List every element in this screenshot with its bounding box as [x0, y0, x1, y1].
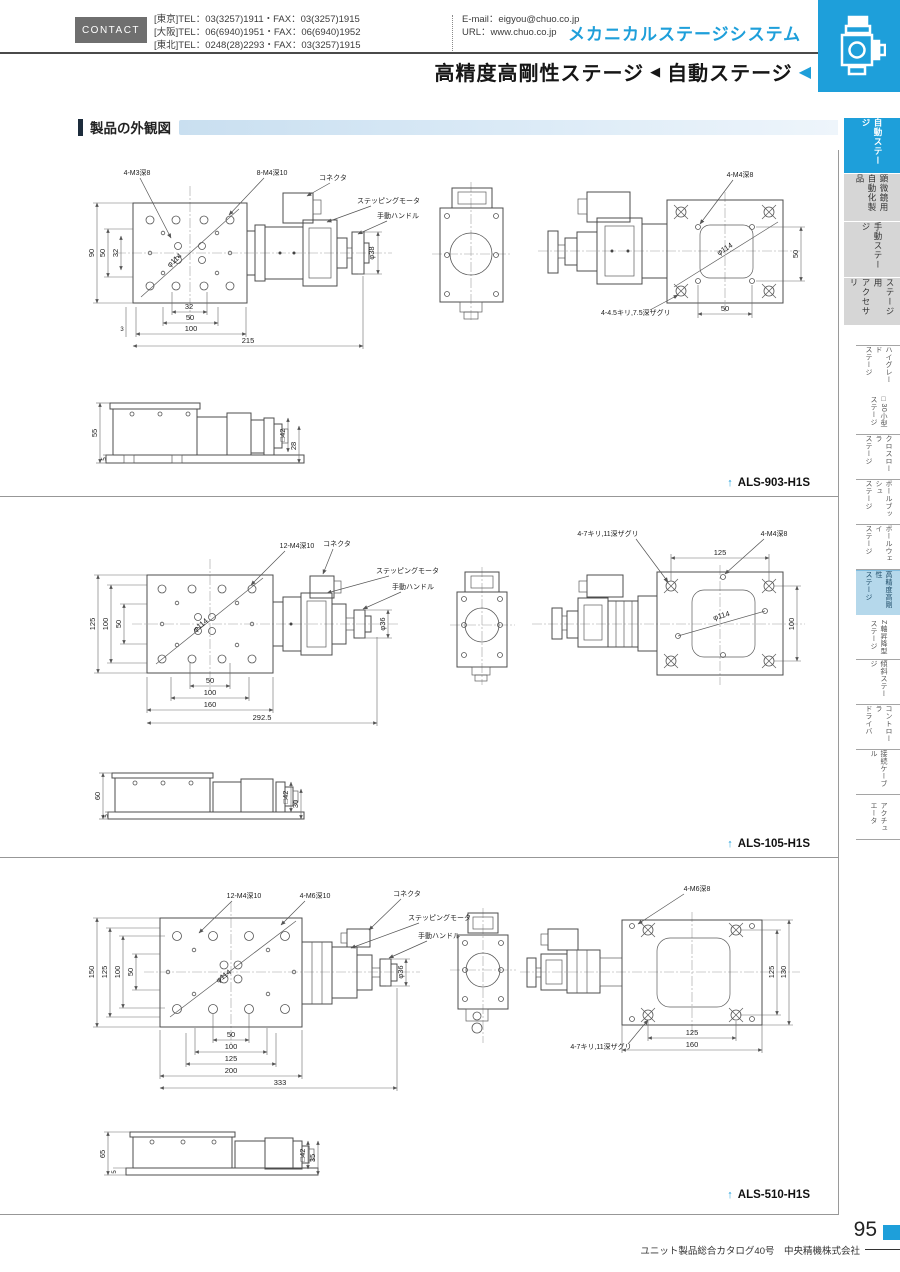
- title-arrow-blue-icon: ◀: [799, 62, 812, 82]
- drawing-section-als105: φ114 12-M4深10 コネクタ ステッピングモータ 手動ハンドル: [0, 497, 838, 858]
- front-view: [432, 182, 512, 320]
- page-number: 95: [854, 1218, 877, 1242]
- dim-left-50: 50: [114, 620, 123, 628]
- sidebar-subtab-ball-way[interactable]: ボールウェイ ステージ: [856, 525, 900, 570]
- label-handle: 手動ハンドル: [377, 211, 419, 220]
- sidebar-tab-microscope-products[interactable]: 顕微鏡用 自動化製品: [844, 174, 900, 221]
- dim-knob-dia: φ36: [396, 965, 405, 978]
- dim-side-5: 5: [112, 1170, 118, 1174]
- sidebar-tab-stage-accessory[interactable]: ステージ用 アクセサリ: [844, 278, 900, 325]
- als105-drawing: φ114 12-M4深10 コネクタ ステッピングモータ 手動ハンドル: [0, 497, 838, 857]
- label-handle: 手動ハンドル: [418, 931, 460, 940]
- dim-side-65: 65: [98, 1150, 107, 1158]
- sidebar-tab-manual-stage[interactable]: 手動ステージ: [844, 222, 900, 277]
- section-accent-bar: [179, 120, 838, 135]
- section-title: 製品の外観図: [90, 117, 171, 137]
- dim-bottom-215: 215: [242, 336, 255, 345]
- dim-bv-right-130: 130: [779, 966, 788, 979]
- dim-bv-right-125: 125: [767, 966, 776, 979]
- dim-bv-right-100: 100: [787, 618, 796, 631]
- dim-left-50: 50: [126, 968, 135, 976]
- als510-drawing: φ114 12-M4深10 4-M6深10 コネクタ ステッピングモータ 手動ハ…: [0, 858, 838, 1214]
- plan-view: φ114 12-M4深10 4-M6深10 コネクタ ステッピングモータ 手動ハ…: [87, 889, 471, 1091]
- label-tap1: 4-M3深8: [124, 168, 151, 177]
- dim-bv-bottom-125: 125: [686, 1028, 699, 1037]
- bottom-view: φ114 50 50 4-M4深8 4-4.5キリ,7.5深ザグリ: [538, 170, 805, 318]
- dim-offset-3: 3: [120, 327, 124, 333]
- dim-bottom-160: 160: [204, 700, 217, 709]
- sidebar-subtab-high-precision-rigid[interactable]: 高精度高剛性 ステージ: [856, 570, 900, 616]
- model-number: ALS-510-H1S: [738, 1189, 810, 1201]
- dim-dia114-bottom: φ114: [712, 609, 731, 622]
- label-motor: ステッピングモータ: [376, 566, 439, 575]
- header-rule: [0, 52, 818, 54]
- dim-bottom-292: 292.5: [253, 713, 272, 722]
- sidebar-subtab-tilt-stage[interactable]: 傾斜ステージ: [856, 660, 900, 705]
- plan-view: φ114 12-M4深10 コネクタ ステッピングモータ 手動ハンドル: [88, 539, 439, 726]
- sidebar-subtab-z-axis[interactable]: Z軸昇降型 ステージ: [856, 615, 900, 660]
- front-view: [450, 567, 515, 685]
- label-motor: ステッピングモータ: [408, 913, 471, 922]
- side-view: 55 5 □42 28: [90, 403, 304, 463]
- model-label-als510: ↑ ALS-510-H1S: [727, 1189, 810, 1201]
- label-connector: コネクタ: [393, 889, 421, 898]
- page-title-left: 高精度高剛性ステージ: [434, 57, 644, 86]
- sidebar-subtab-30-compact[interactable]: □30小型 ステージ: [856, 390, 900, 435]
- stage-icon: [832, 15, 886, 77]
- dim-bottom-32: 32: [185, 302, 193, 311]
- label-connector: コネクタ: [323, 539, 351, 548]
- dim-bv-top-125: 125: [714, 548, 727, 557]
- dim-bottom-333: 333: [274, 1078, 287, 1087]
- drawing-section-als510: φ114 12-M4深10 4-M6深10 コネクタ ステッピングモータ 手動ハ…: [0, 858, 838, 1215]
- dim-side-55: 55: [90, 429, 99, 437]
- sidebar-subtab-controller-driver[interactable]: コントローラ ドライバ: [856, 705, 900, 750]
- bottom-view: 4-M6深8 4-7キリ,11深ザグリ 125 130 125 160: [520, 884, 800, 1053]
- dim-bottom-125: 125: [225, 1054, 238, 1063]
- sidebar-tab-auto-stage[interactable]: 自動ステージ: [844, 118, 900, 173]
- model-label-als903: ↑ ALS-903-H1S: [727, 477, 810, 489]
- als903-drawing: φ114 4-M3深8 8-M4深10 コネクタ ステッピングモー: [0, 150, 838, 496]
- model-number: ALS-903-H1S: [738, 477, 810, 489]
- page-title: 高精度高剛性ステージ ◀ 自動ステージ ◀: [434, 57, 812, 86]
- up-arrow-icon: ↑: [727, 838, 733, 850]
- label-bottom-tap: 4-M4深8: [727, 170, 754, 179]
- label-handle: 手動ハンドル: [392, 582, 434, 591]
- drawing-section-als903: φ114 4-M3深8 8-M4深10 コネクタ ステッピングモー: [0, 150, 838, 497]
- dim-side-42: □42: [298, 1149, 307, 1162]
- side-view: 60 5 □42 30: [93, 773, 304, 819]
- catalog-page: CONTACT [東京]TEL：03(3257)1911・FAX：03(3257…: [0, 0, 900, 1272]
- dim-dia114-plan: φ114: [191, 616, 210, 634]
- dim-bottom-50: 50: [206, 676, 214, 685]
- sidebar-subtab-cross-roller[interactable]: クロスローラ ステージ: [856, 435, 900, 480]
- url-text: URL：www.chuo.co.jp: [462, 26, 579, 39]
- dim-dia114-plan: φ114: [165, 251, 184, 269]
- label-tap2: 8-M4深10: [257, 168, 288, 177]
- email-url-block: E-mail：eigyou@chuo.co.jp URL：www.chuo.co…: [462, 13, 579, 39]
- tel-fax-lines: [東京]TEL：03(3257)1911・FAX：03(3257)1915 [大…: [154, 13, 360, 52]
- dim-side-42: □42: [281, 791, 290, 804]
- up-arrow-icon: ↑: [727, 477, 733, 489]
- label-connector: コネクタ: [319, 173, 347, 182]
- contact-button[interactable]: CONTACT: [75, 17, 147, 43]
- dim-left-150: 150: [87, 966, 96, 979]
- dim-left-32: 32: [111, 249, 120, 257]
- dim-left-125: 125: [100, 966, 109, 979]
- label-counterbore: 4-4.5キリ,7.5深ザグリ: [601, 308, 671, 317]
- side-view: 65 5 □42 35: [98, 1132, 318, 1175]
- front-view: [450, 908, 516, 1043]
- dim-bottom-50: 50: [186, 313, 194, 322]
- dim-side-5: 5: [102, 457, 108, 461]
- dim-bv-bottom-50: 50: [721, 304, 729, 313]
- stage-category-icon: [818, 0, 900, 92]
- label-bottom-tap: 4-M4深8: [761, 529, 788, 538]
- model-label-als105: ↑ ALS-105-H1S: [727, 838, 810, 850]
- dim-side-28: 28: [289, 442, 298, 450]
- dim-bottom-200: 200: [225, 1066, 238, 1075]
- title-arrow-icon: ◀: [650, 64, 661, 80]
- email-text: E-mail：eigyou@chuo.co.jp: [462, 13, 579, 26]
- dim-bottom-100: 100: [185, 324, 198, 333]
- dim-left-90: 90: [87, 249, 96, 257]
- sidebar-subtab-high-grade[interactable]: ハイグレード ステージ: [856, 345, 900, 391]
- sidebar-subtab-cable[interactable]: 接続ケーブル: [856, 750, 900, 795]
- up-arrow-icon: ↑: [727, 1189, 733, 1201]
- dim-left-100: 100: [101, 618, 110, 631]
- dim-left-100: 100: [113, 966, 122, 979]
- page-number-accent-bar: [883, 1225, 900, 1240]
- model-number: ALS-105-H1S: [738, 838, 810, 850]
- brand-title: メカニカルステージシステム: [568, 20, 801, 45]
- bottom-view: φ114 125 100 4-M4深8 4-7キリ,11深ザグリ: [532, 529, 805, 685]
- catalog-note: ユニット製品総合カタログ40号 中央精機株式会社: [640, 1243, 860, 1257]
- dim-bottom-50: 50: [227, 1030, 235, 1039]
- dim-side-30: 30: [291, 800, 300, 808]
- dim-dia114-bottom: φ114: [715, 241, 734, 258]
- label-counterbore: 4-7キリ,11深ザグリ: [577, 529, 638, 538]
- dim-left-125: 125: [88, 618, 97, 631]
- sidebar-subtab-actuator[interactable]: アクチュ エータ: [856, 795, 900, 840]
- dim-bottom-100: 100: [204, 688, 217, 697]
- page-title-right: 自動ステージ: [667, 57, 793, 86]
- dim-bv-bottom-160: 160: [686, 1040, 699, 1049]
- label-counterbore: 4-7キリ,11深ザグリ: [570, 1042, 631, 1051]
- dim-bottom-100: 100: [225, 1042, 238, 1051]
- header-divider: [452, 15, 453, 53]
- label-tap1: 12-M4深10: [280, 541, 315, 550]
- plan-view: φ114 4-M3深8 8-M4深10 コネクタ ステッピングモー: [87, 168, 420, 349]
- dim-side-35: 35: [308, 1154, 317, 1162]
- section-header: 製品の外観図: [78, 117, 838, 137]
- dim-knob-dia: φ38: [367, 246, 376, 259]
- dim-side-60: 60: [93, 792, 102, 800]
- label-tap2: 4-M6深10: [300, 891, 331, 900]
- dim-dia114-plan: φ114: [214, 967, 233, 984]
- dim-knob-dia: φ36: [378, 617, 387, 630]
- dim-side-42: □42: [278, 429, 287, 442]
- content-right-border: [838, 150, 839, 1215]
- catalog-note-rule: [865, 1249, 900, 1250]
- sidebar-subtab-ball-bush[interactable]: ボールブッシュ ステージ: [856, 480, 900, 525]
- label-bottom-tap: 4-M6深8: [684, 884, 711, 893]
- dim-left-50: 50: [98, 249, 107, 257]
- dim-side-5: 5: [104, 814, 110, 818]
- dim-bv-right-50: 50: [791, 250, 800, 258]
- label-motor: ステッピングモータ: [357, 196, 420, 205]
- section-bullet-bar: [78, 119, 83, 136]
- label-tap1: 12-M4深10: [227, 891, 262, 900]
